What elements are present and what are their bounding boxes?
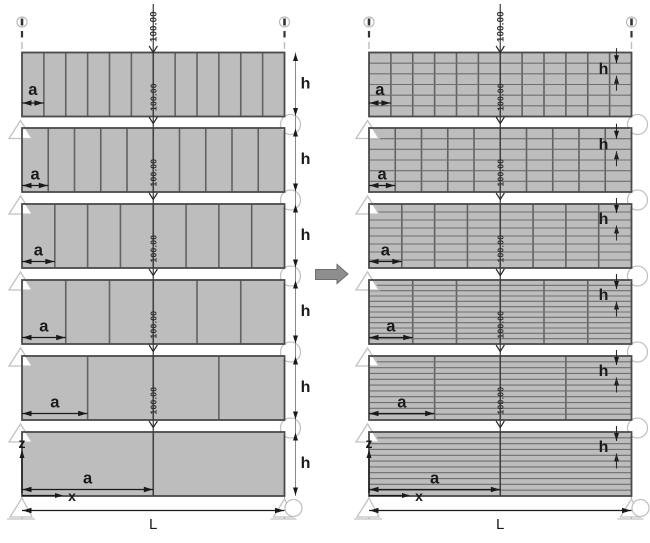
svg-text:x: x bbox=[415, 488, 423, 504]
svg-text:a: a bbox=[381, 242, 391, 260]
svg-text:h: h bbox=[599, 61, 609, 78]
svg-text:100.00: 100.00 bbox=[148, 311, 158, 339]
svg-text:a: a bbox=[34, 242, 44, 260]
svg-text:h: h bbox=[599, 136, 609, 153]
svg-text:z: z bbox=[366, 435, 373, 451]
svg-text:100.00: 100.00 bbox=[495, 311, 505, 339]
svg-text:h: h bbox=[301, 455, 311, 472]
svg-text:100.00: 100.00 bbox=[148, 159, 158, 187]
svg-text:L: L bbox=[149, 516, 157, 533]
svg-text:h: h bbox=[301, 379, 311, 396]
svg-text:100.00: 100.00 bbox=[495, 11, 506, 42]
svg-text:100.00: 100.00 bbox=[495, 83, 505, 111]
svg-text:a: a bbox=[31, 166, 41, 184]
svg-text:z: z bbox=[19, 435, 26, 451]
svg-text:h: h bbox=[301, 303, 311, 320]
svg-text:100.00: 100.00 bbox=[148, 11, 159, 42]
svg-text:x: x bbox=[68, 488, 76, 504]
svg-text:100.00: 100.00 bbox=[495, 387, 505, 415]
svg-text:h: h bbox=[599, 363, 609, 380]
svg-text:a: a bbox=[83, 470, 93, 488]
svg-text:100.00: 100.00 bbox=[495, 159, 505, 187]
svg-text:100.00: 100.00 bbox=[148, 235, 158, 263]
svg-text:h: h bbox=[301, 151, 311, 168]
svg-text:a: a bbox=[28, 81, 38, 99]
svg-text:h: h bbox=[301, 227, 311, 244]
svg-text:h: h bbox=[599, 439, 609, 456]
svg-text:a: a bbox=[50, 394, 60, 412]
svg-text:a: a bbox=[397, 394, 407, 412]
svg-text:a: a bbox=[375, 81, 385, 99]
svg-text:h: h bbox=[599, 287, 609, 304]
svg-text:a: a bbox=[378, 166, 388, 184]
svg-text:100.00: 100.00 bbox=[148, 83, 158, 111]
svg-text:100.00: 100.00 bbox=[148, 387, 158, 415]
svg-text:a: a bbox=[430, 470, 440, 488]
svg-text:h: h bbox=[599, 211, 609, 228]
svg-text:h: h bbox=[301, 76, 311, 93]
svg-text:L: L bbox=[496, 516, 504, 533]
svg-text:a: a bbox=[386, 318, 396, 336]
svg-text:100.00: 100.00 bbox=[495, 235, 505, 263]
svg-text:a: a bbox=[39, 318, 49, 336]
